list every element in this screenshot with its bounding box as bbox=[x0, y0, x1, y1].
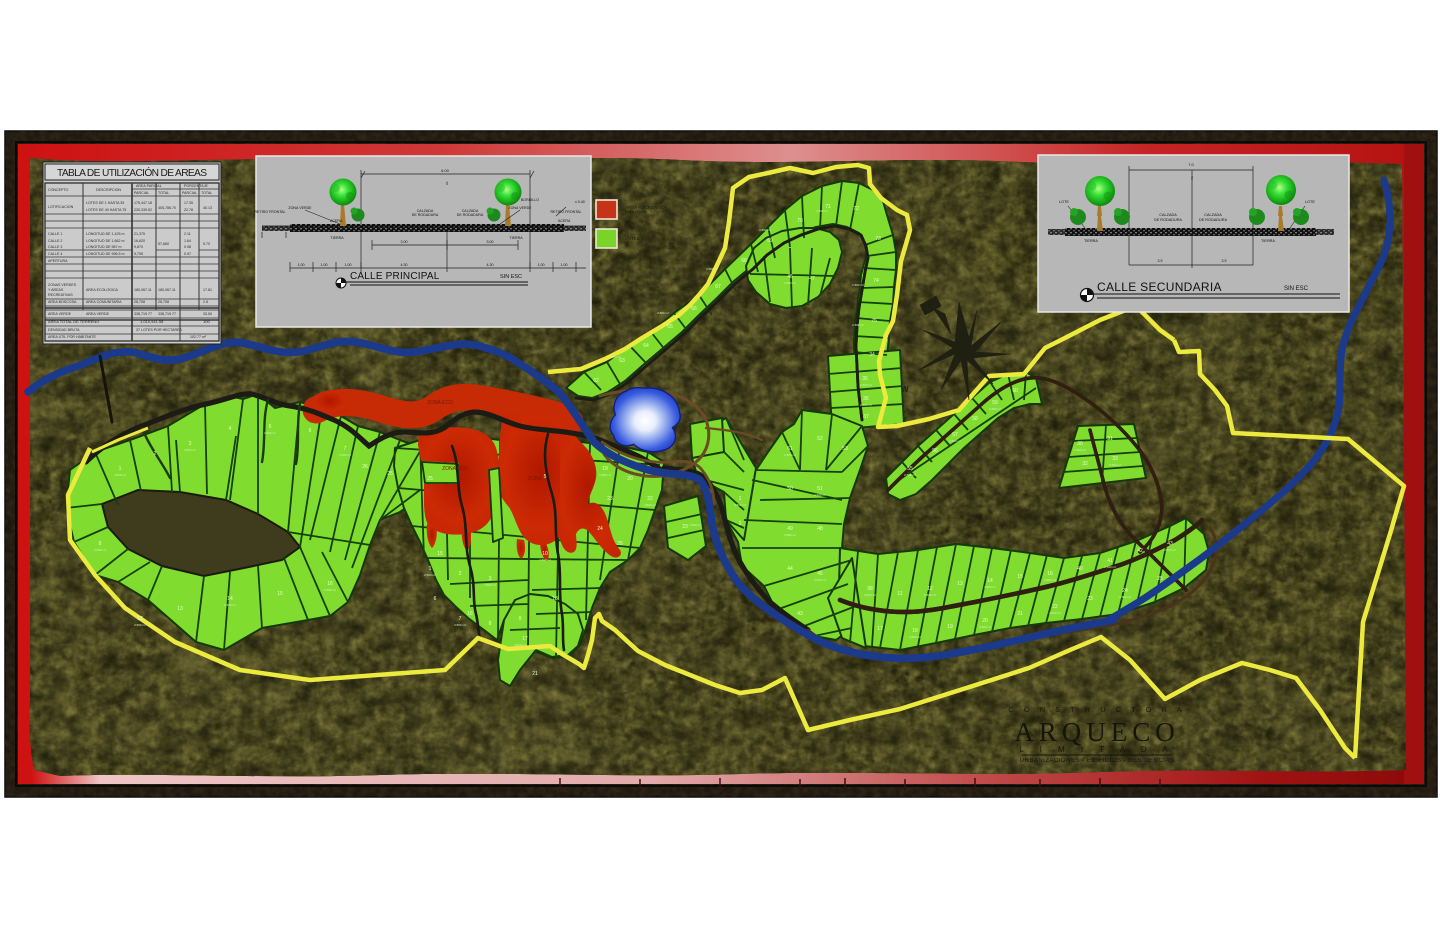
svg-text:4: 4 bbox=[229, 426, 232, 432]
svg-text:CALLE SECUNDARIA: CALLE SECUNDARIA bbox=[1097, 280, 1222, 294]
svg-text:53: 53 bbox=[842, 446, 848, 452]
svg-text:66: 66 bbox=[691, 306, 697, 312]
svg-text:11: 11 bbox=[897, 591, 902, 597]
svg-text:LOTIFICACION: LOTIFICACION bbox=[48, 205, 74, 209]
svg-text:L I M I T A D A: L I M I T A D A bbox=[1019, 745, 1175, 754]
svg-text:3: 3 bbox=[189, 441, 192, 447]
svg-text:2,500 m²: 2,500 m² bbox=[784, 453, 796, 457]
svg-text:ECOLOGICA: ECOLOGICA bbox=[625, 210, 647, 214]
svg-text:2,500 m²: 2,500 m² bbox=[852, 323, 864, 327]
svg-text:2,500 m²: 2,500 m² bbox=[814, 493, 826, 497]
svg-text:2: 2 bbox=[154, 451, 157, 457]
svg-text:BORDILLO: BORDILLO bbox=[521, 198, 539, 202]
svg-text:AREA COMUNITARIA: AREA COMUNITARIA bbox=[86, 300, 122, 304]
svg-text:50: 50 bbox=[787, 486, 793, 492]
svg-text:61: 61 bbox=[787, 446, 793, 452]
svg-text:40.13: 40.13 bbox=[203, 206, 212, 210]
svg-text:RETIRO FRONTAL: RETIRO FRONTAL bbox=[254, 210, 285, 214]
svg-text:75: 75 bbox=[871, 318, 877, 324]
svg-text:19: 19 bbox=[947, 624, 953, 630]
svg-text:17.35: 17.35 bbox=[184, 201, 193, 205]
svg-text:AREA VERDE: AREA VERDE bbox=[86, 312, 110, 316]
svg-text:1: 1 bbox=[429, 566, 432, 572]
svg-text:2,500 m²: 2,500 m² bbox=[706, 267, 718, 271]
svg-text:LONGITUD DE 996.5 m: LONGITUD DE 996.5 m bbox=[86, 252, 125, 256]
svg-text:2,500 m²: 2,500 m² bbox=[689, 523, 701, 527]
svg-text:57: 57 bbox=[952, 432, 958, 438]
svg-text:CALLE 2: CALLE 2 bbox=[48, 239, 62, 243]
svg-text:7: 7 bbox=[459, 616, 462, 622]
svg-text:405,786.70: 405,786.70 bbox=[158, 206, 176, 210]
svg-text:LOTE: LOTE bbox=[1305, 200, 1315, 204]
svg-text:ARQUECO: ARQUECO bbox=[1014, 717, 1180, 747]
svg-text:Y AREAS: Y AREAS bbox=[48, 288, 64, 292]
svg-text:8: 8 bbox=[99, 541, 102, 547]
svg-text:2,500 m²: 2,500 m² bbox=[1119, 595, 1131, 599]
svg-text:21: 21 bbox=[1017, 611, 1023, 617]
svg-text:APERTURA: APERTURA bbox=[48, 259, 68, 263]
svg-text:64: 64 bbox=[643, 343, 649, 349]
svg-text:2,500 m²: 2,500 m² bbox=[1164, 548, 1176, 552]
svg-text:ZONA: ZONA bbox=[528, 476, 543, 482]
svg-text:2,500 m²: 2,500 m² bbox=[1109, 463, 1121, 467]
svg-text:2,500 m²: 2,500 m² bbox=[324, 588, 336, 592]
svg-text:36: 36 bbox=[863, 396, 869, 402]
svg-text:2,500 m²: 2,500 m² bbox=[424, 573, 436, 577]
svg-text:6: 6 bbox=[309, 428, 312, 434]
svg-text:2,500 m²: 2,500 m² bbox=[514, 643, 526, 647]
svg-text:48: 48 bbox=[817, 526, 823, 532]
svg-text:21,375: 21,375 bbox=[134, 232, 145, 236]
svg-text:CALLE 1: CALLE 1 bbox=[48, 232, 62, 236]
svg-text:26: 26 bbox=[362, 464, 368, 470]
svg-text:2,500 m²: 2,500 m² bbox=[864, 593, 876, 597]
svg-text:2,500 m²: 2,500 m² bbox=[1074, 448, 1086, 452]
svg-text:ZONA VERDE: ZONA VERDE bbox=[288, 206, 312, 210]
svg-text:24: 24 bbox=[1122, 588, 1128, 594]
svg-text:2,500 m²: 2,500 m² bbox=[784, 533, 796, 537]
svg-text:4.30: 4.30 bbox=[401, 263, 408, 267]
svg-text:CALLE PRINCIPAL: CALLE PRINCIPAL bbox=[350, 271, 440, 282]
svg-text:PARCIAL: PARCIAL bbox=[182, 191, 197, 195]
svg-text:TIERRA: TIERRA bbox=[1084, 239, 1098, 243]
svg-text:52: 52 bbox=[817, 436, 823, 442]
svg-text:55: 55 bbox=[907, 466, 913, 472]
svg-text:0.97: 0.97 bbox=[184, 252, 191, 256]
svg-text:25: 25 bbox=[1157, 576, 1163, 582]
svg-text:LONGITUD DE 1,425 m: LONGITUD DE 1,425 m bbox=[86, 232, 125, 236]
svg-text:37: 37 bbox=[863, 414, 869, 420]
svg-text:2,500 m²: 2,500 m² bbox=[924, 593, 936, 597]
svg-text:ACERA: ACERA bbox=[558, 219, 571, 223]
svg-text:2: 2 bbox=[739, 521, 742, 527]
svg-text:7.0: 7.0 bbox=[1188, 162, 1194, 167]
svg-text:22: 22 bbox=[647, 496, 653, 502]
svg-text:180,067.11: 180,067.11 bbox=[158, 288, 176, 292]
svg-text:RECREATIVAS: RECREATIVAS bbox=[48, 293, 73, 297]
svg-text:AREA PARCIAL: AREA PARCIAL bbox=[136, 184, 162, 188]
svg-text:2,500 m²: 2,500 m² bbox=[609, 355, 621, 359]
svg-text:2,500 m²: 2,500 m² bbox=[759, 228, 771, 232]
svg-text:22: 22 bbox=[1052, 604, 1058, 610]
svg-text:35: 35 bbox=[862, 376, 868, 382]
svg-text:5.70: 5.70 bbox=[203, 242, 210, 246]
svg-text:9: 9 bbox=[519, 616, 522, 622]
svg-text:2,500 m²: 2,500 m² bbox=[134, 623, 146, 627]
svg-text:LONGITUD DE 1,662 m: LONGITUD DE 1,662 m bbox=[86, 239, 125, 243]
svg-text:3.00: 3.00 bbox=[487, 240, 494, 244]
svg-text:41: 41 bbox=[1107, 558, 1113, 564]
svg-text:2,500 m²: 2,500 m² bbox=[784, 281, 796, 285]
svg-text:2,500 m²: 2,500 m² bbox=[224, 603, 236, 607]
svg-text:LOTES DE 1 HASTA 39: LOTES DE 1 HASTA 39 bbox=[86, 201, 124, 205]
svg-text:65: 65 bbox=[667, 324, 673, 330]
svg-text:60: 60 bbox=[1012, 388, 1018, 394]
svg-text:TIERRA: TIERRA bbox=[509, 236, 523, 240]
svg-text:6: 6 bbox=[434, 596, 437, 602]
svg-text:25: 25 bbox=[617, 541, 623, 547]
svg-text:175,447.18: 175,447.18 bbox=[134, 201, 152, 205]
svg-text:2,500 m²: 2,500 m² bbox=[816, 209, 828, 213]
svg-text:17.81: 17.81 bbox=[203, 288, 212, 292]
svg-text:13: 13 bbox=[177, 606, 183, 612]
svg-text:7: 7 bbox=[344, 446, 347, 452]
svg-text:3: 3 bbox=[489, 576, 492, 582]
svg-text:31: 31 bbox=[1107, 436, 1113, 442]
svg-text:2,500 m²: 2,500 m² bbox=[484, 583, 496, 587]
svg-text:CALLE 3: CALLE 3 bbox=[48, 245, 62, 249]
svg-text:2,500 m²: 2,500 m² bbox=[539, 558, 551, 562]
svg-text:34: 34 bbox=[869, 352, 875, 358]
svg-text:ZONAS VERDES: ZONAS VERDES bbox=[48, 283, 77, 287]
svg-text:2,500 m²: 2,500 m² bbox=[454, 623, 466, 627]
svg-text:LOTES: LOTES bbox=[625, 236, 640, 241]
svg-text:TABLA DE UTILIZACIÓN DE AREAS: TABLA DE UTILIZACIÓN DE AREAS bbox=[57, 166, 207, 179]
svg-text:URBANIZACIONES - EDIFICIOS - R: URBANIZACIONES - EDIFICIOS - RESIDENCIAS bbox=[1020, 758, 1175, 764]
svg-text:DENSIDAD BRUTA: DENSIDAD BRUTA bbox=[48, 328, 80, 332]
svg-text:3.00: 3.00 bbox=[401, 240, 408, 244]
svg-text:30: 30 bbox=[1077, 441, 1083, 447]
svg-text:33.50: 33.50 bbox=[203, 312, 212, 316]
svg-text:2.11: 2.11 bbox=[184, 232, 191, 236]
svg-text:0.98: 0.98 bbox=[184, 245, 191, 249]
svg-text:2,500 m²: 2,500 m² bbox=[989, 407, 1001, 411]
svg-text:2,500 m²: 2,500 m² bbox=[184, 448, 196, 452]
svg-text:4.30: 4.30 bbox=[487, 263, 494, 267]
svg-text:2,500 m²: 2,500 m² bbox=[984, 585, 996, 589]
svg-text:15: 15 bbox=[437, 551, 443, 557]
svg-text:57,660: 57,660 bbox=[158, 242, 169, 246]
svg-text:2,500 m²: 2,500 m² bbox=[949, 439, 961, 443]
svg-text:CALZADA: CALZADA bbox=[1204, 213, 1222, 217]
svg-text:13: 13 bbox=[957, 581, 963, 587]
svg-text:10: 10 bbox=[542, 551, 548, 557]
svg-text:28,708: 28,708 bbox=[134, 300, 145, 304]
svg-text:37 LOTES POR HECTAREA: 37 LOTES POR HECTAREA bbox=[136, 328, 182, 332]
svg-text:DE RODADURA: DE RODADURA bbox=[1199, 218, 1228, 222]
svg-text:2,500 m²: 2,500 m² bbox=[1104, 565, 1116, 569]
svg-text:22.78: 22.78 bbox=[184, 208, 193, 212]
svg-text:47: 47 bbox=[809, 276, 815, 282]
svg-text:23: 23 bbox=[682, 524, 688, 530]
svg-text:5: 5 bbox=[544, 474, 547, 480]
svg-text:CALLE 4: CALLE 4 bbox=[48, 252, 62, 256]
svg-text:2,500 m²: 2,500 m² bbox=[94, 548, 106, 552]
svg-text:2,500 m²: 2,500 m² bbox=[734, 503, 746, 507]
svg-text:33: 33 bbox=[1112, 456, 1118, 462]
svg-text:18: 18 bbox=[912, 628, 918, 634]
svg-text:2,500 m²: 2,500 m² bbox=[657, 311, 669, 315]
svg-text:TIERRA: TIERRA bbox=[1261, 239, 1275, 243]
svg-text:ZONA ECO: ZONA ECO bbox=[427, 400, 453, 406]
svg-text:2,500 m²: 2,500 m² bbox=[114, 473, 126, 477]
svg-text:43: 43 bbox=[1167, 541, 1173, 547]
svg-text:62: 62 bbox=[593, 378, 599, 384]
svg-text:PARCIAL: PARCIAL bbox=[134, 191, 149, 195]
svg-text:RETIRO FRONTAL: RETIRO FRONTAL bbox=[550, 210, 581, 214]
svg-text:W: W bbox=[901, 385, 909, 394]
svg-text:59: 59 bbox=[992, 400, 998, 406]
svg-text:16: 16 bbox=[327, 581, 333, 587]
svg-text:2.8: 2.8 bbox=[203, 300, 208, 304]
svg-text:68: 68 bbox=[741, 258, 747, 264]
svg-text:16,620: 16,620 bbox=[134, 239, 145, 243]
svg-text:230,339.52: 230,339.52 bbox=[134, 208, 152, 212]
svg-text:2,500 m²: 2,500 m² bbox=[599, 473, 611, 477]
svg-text:DE RODADURA: DE RODADURA bbox=[412, 213, 439, 217]
svg-text:CONCEPTO: CONCEPTO bbox=[48, 188, 69, 192]
svg-text:23: 23 bbox=[607, 496, 613, 502]
svg-text:CALZADA: CALZADA bbox=[1159, 213, 1177, 217]
svg-text:6.00: 6.00 bbox=[441, 168, 450, 173]
svg-text:1.00: 1.00 bbox=[321, 263, 328, 267]
svg-text:1.00: 1.00 bbox=[538, 263, 545, 267]
svg-text:56: 56 bbox=[932, 448, 938, 454]
svg-text:25: 25 bbox=[387, 471, 393, 477]
svg-text:25: 25 bbox=[427, 476, 433, 482]
svg-text:338,719.77: 338,719.77 bbox=[158, 312, 176, 316]
svg-text:45: 45 bbox=[817, 571, 823, 577]
svg-text:40: 40 bbox=[1077, 566, 1083, 572]
svg-text:24: 24 bbox=[597, 526, 603, 532]
svg-text:42: 42 bbox=[1137, 548, 1143, 554]
svg-text:2,500 m²: 2,500 m² bbox=[1049, 611, 1061, 615]
svg-text:ZONA VERDE: ZONA VERDE bbox=[508, 206, 532, 210]
svg-text:20: 20 bbox=[627, 476, 633, 482]
svg-text:8: 8 bbox=[489, 621, 492, 627]
svg-text:C O N S T R U C T O R A: C O N S T R U C T O R A bbox=[1008, 705, 1185, 714]
svg-text:16: 16 bbox=[467, 611, 473, 617]
svg-text:16: 16 bbox=[1047, 571, 1053, 577]
svg-text:46: 46 bbox=[787, 274, 793, 280]
svg-text:AREA VERDE: AREA VERDE bbox=[48, 312, 72, 316]
svg-text:TOTAL: TOTAL bbox=[201, 191, 212, 195]
svg-text:2,500 m²: 2,500 m² bbox=[860, 403, 872, 407]
svg-text:2,500 m²: 2,500 m² bbox=[339, 453, 351, 457]
svg-text:2,500 m²: 2,500 m² bbox=[264, 431, 276, 435]
svg-text:3.5: 3.5 bbox=[1222, 259, 1227, 263]
svg-text:AREA UTIL POR HABITANTE: AREA UTIL POR HABITANTE bbox=[48, 335, 97, 339]
svg-text:DESCRIPCION: DESCRIPCION bbox=[96, 188, 121, 192]
svg-text:15: 15 bbox=[1017, 574, 1023, 580]
svg-text:28,708: 28,708 bbox=[158, 300, 169, 304]
svg-text:49: 49 bbox=[787, 526, 793, 532]
svg-text:17: 17 bbox=[877, 626, 883, 632]
svg-text:1.00: 1.00 bbox=[298, 263, 305, 267]
svg-text:2: 2 bbox=[459, 571, 462, 577]
svg-text:15: 15 bbox=[277, 591, 283, 597]
svg-text:58: 58 bbox=[972, 416, 978, 422]
svg-text:72: 72 bbox=[853, 206, 859, 212]
svg-text:73: 73 bbox=[875, 236, 881, 242]
svg-text:2,500 m²: 2,500 m² bbox=[852, 283, 864, 287]
svg-text:70: 70 bbox=[797, 218, 803, 224]
svg-text:SIN ESC: SIN ESC bbox=[500, 274, 522, 280]
svg-text:ZONA ECO: ZONA ECO bbox=[442, 466, 468, 472]
svg-text:2,500 m²: 2,500 m² bbox=[860, 383, 872, 387]
svg-text:9,870: 9,870 bbox=[134, 245, 143, 249]
svg-text:TOTAL: TOTAL bbox=[158, 191, 169, 195]
svg-text:DE RODADURA: DE RODADURA bbox=[457, 213, 484, 217]
svg-text:67: 67 bbox=[715, 284, 721, 290]
svg-text:74: 74 bbox=[873, 278, 879, 284]
svg-text:DE RODADURA: DE RODADURA bbox=[1154, 218, 1183, 222]
svg-text:ℓ: ℓ bbox=[1191, 176, 1193, 182]
svg-text:AREA BOSCOSA: AREA BOSCOSA bbox=[48, 300, 77, 304]
svg-text:2,500 m²: 2,500 m² bbox=[904, 473, 916, 477]
svg-text:19: 19 bbox=[602, 466, 608, 472]
svg-text:51: 51 bbox=[817, 486, 823, 492]
svg-text:SIN ESC: SIN ESC bbox=[1284, 286, 1309, 292]
svg-text:LOTE: LOTE bbox=[1059, 200, 1069, 204]
svg-text:2,500 m²: 2,500 m² bbox=[1044, 578, 1056, 582]
svg-text:1.00: 1.00 bbox=[561, 263, 568, 267]
svg-text:43: 43 bbox=[797, 611, 803, 617]
svg-text:17: 17 bbox=[522, 636, 528, 642]
svg-text:TIERRA: TIERRA bbox=[330, 236, 344, 240]
svg-text:20: 20 bbox=[982, 618, 988, 624]
svg-text:12: 12 bbox=[927, 586, 933, 592]
svg-text:2,500 m²: 2,500 m² bbox=[644, 503, 656, 507]
svg-text:3.5: 3.5 bbox=[1158, 259, 1163, 263]
svg-text:x 0.40: x 0.40 bbox=[575, 200, 585, 204]
svg-text:5: 5 bbox=[269, 424, 272, 430]
svg-text:44: 44 bbox=[787, 566, 793, 572]
svg-text:1.00: 1.00 bbox=[345, 263, 352, 267]
svg-text:21: 21 bbox=[532, 671, 538, 677]
svg-text:2,500 m²: 2,500 m² bbox=[979, 625, 991, 629]
svg-text:23: 23 bbox=[1087, 596, 1093, 602]
svg-text:AREA ECOLOGICA: AREA ECOLOGICA bbox=[86, 288, 119, 292]
svg-text:102.77 m²: 102.77 m² bbox=[190, 335, 207, 339]
svg-text:2,500 m²: 2,500 m² bbox=[909, 635, 921, 639]
svg-text:32: 32 bbox=[1082, 461, 1088, 467]
svg-text:PORCENTAJE: PORCENTAJE bbox=[184, 184, 208, 188]
svg-text:1: 1 bbox=[739, 496, 742, 502]
svg-text:LONGITUD DE 987 m: LONGITUD DE 987 m bbox=[86, 245, 122, 249]
svg-text:2,500 m²: 2,500 m² bbox=[814, 578, 826, 582]
svg-text:9,795: 9,795 bbox=[134, 252, 143, 256]
svg-text:1.64: 1.64 bbox=[184, 239, 191, 243]
svg-text:338,719.77: 338,719.77 bbox=[134, 312, 152, 316]
svg-text:LOTES DE 40 HASTA 75: LOTES DE 40 HASTA 75 bbox=[86, 208, 126, 212]
svg-text:180,067.11: 180,067.11 bbox=[134, 288, 152, 292]
svg-text:18: 18 bbox=[552, 596, 558, 602]
svg-text:14: 14 bbox=[227, 596, 233, 602]
svg-text:1: 1 bbox=[119, 466, 122, 472]
svg-text:12: 12 bbox=[137, 616, 143, 622]
svg-text:38: 38 bbox=[867, 586, 873, 592]
svg-text:14: 14 bbox=[987, 578, 993, 584]
svg-text:69: 69 bbox=[767, 238, 773, 244]
